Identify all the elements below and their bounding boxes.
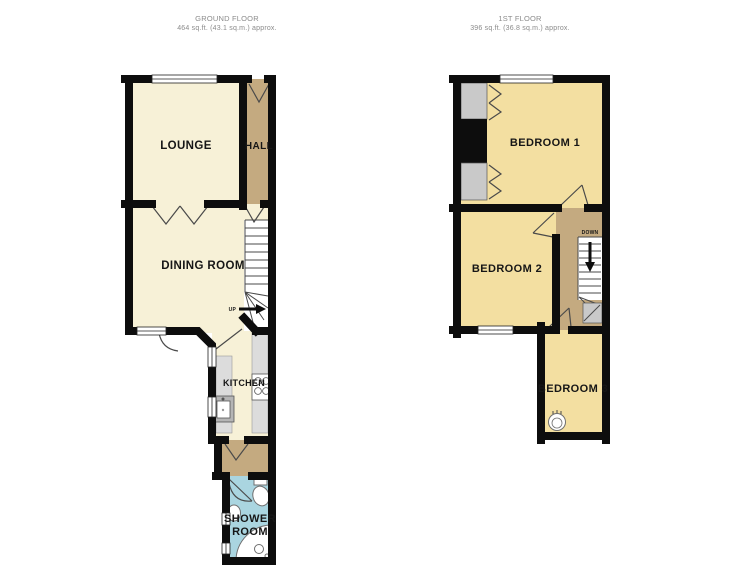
kitchen-label: KITCHEN [223,378,265,388]
up-label: UP [229,307,237,313]
shower-room-label-line1: SHOWER [224,513,276,525]
bedroom3-label: BEDROOM 3 [538,383,608,395]
down-label: DOWN [582,230,599,236]
bedroom2-window [478,326,513,334]
hall-label: HALL [245,141,273,152]
kitchen-window-2 [208,397,216,417]
dining-window [137,327,166,335]
kitchen-sink [214,396,234,422]
lounge-label: LOUNGE [160,140,212,152]
shower-room-label-line2: ROOM [232,526,268,538]
dining-room-label: DINING ROOM [161,260,245,272]
floorplan-drawing: UP [0,0,750,582]
lounge-window [152,75,217,83]
kitchen-window-1 [208,347,216,367]
floorplan-page: GROUND FLOOR 464 sq.ft. (43.1 sq.m.) app… [0,0,750,582]
closet-2 [461,163,487,200]
closet-1 [461,83,487,119]
bedroom1-window [500,75,553,83]
ground-floor-plan: UP [125,75,276,565]
shower-window-2 [222,543,230,554]
bedroom2-label: BEDROOM 2 [472,263,542,275]
bedroom1-label: BEDROOM 1 [510,137,580,149]
first-floor-plan: DOWN [453,75,608,440]
dining-door-swing [159,333,178,351]
